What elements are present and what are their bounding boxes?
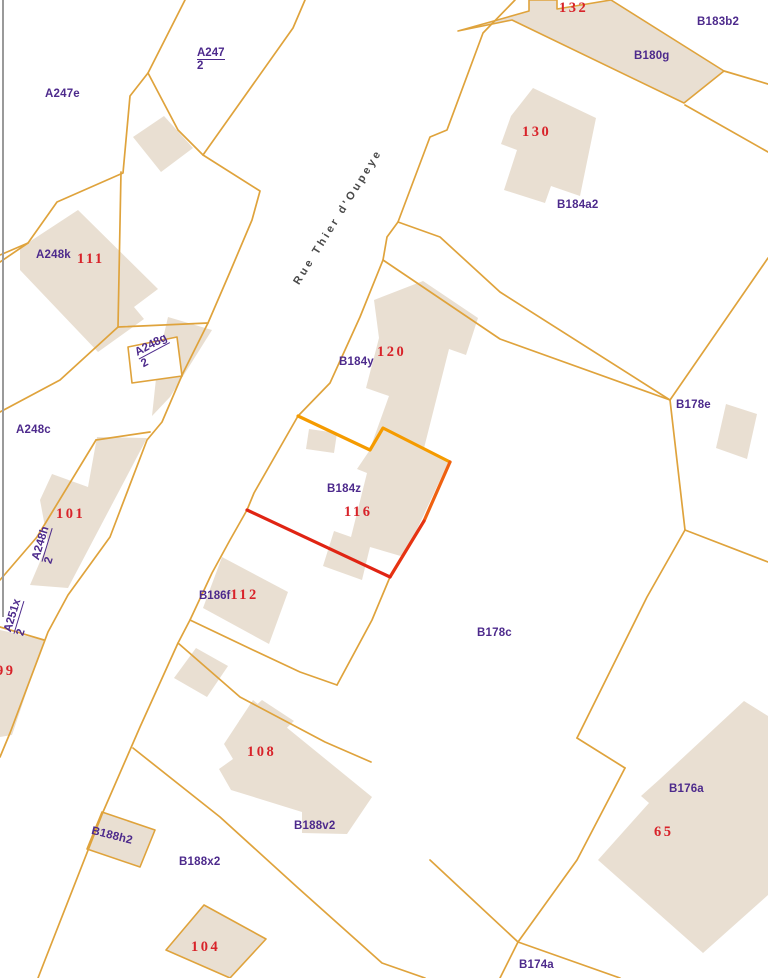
parcel-line-strip-tail-2 <box>685 105 768 152</box>
parcel-line-v1-northeast <box>670 258 768 400</box>
parcel-line-b174a-road <box>430 860 620 978</box>
building-65 <box>598 701 768 953</box>
parcel-line-strip-tail-1 <box>724 71 768 84</box>
building-a251x <box>0 630 44 737</box>
building-b188h2 <box>87 812 155 867</box>
parcel-line-v1-south <box>670 400 685 530</box>
parcel-line-b174a-west <box>500 768 625 978</box>
building-annex-1 <box>174 648 228 697</box>
building-108 <box>219 700 372 834</box>
parcel-line-b178c-south <box>577 738 625 768</box>
parcel-line-b186f-east <box>337 577 390 685</box>
building-a247e <box>133 116 193 172</box>
building-111 <box>20 210 158 352</box>
building-b178e <box>716 404 757 459</box>
parcel-line-b176a-west <box>577 530 685 738</box>
cadastral-map-viewport[interactable]: A247eA248kA248cB183b2B180gB184a2B178eB18… <box>0 0 768 978</box>
building-132-strip <box>458 0 724 103</box>
building-112 <box>203 557 288 644</box>
building-104 <box>166 905 266 978</box>
box-a248g2 <box>128 337 182 383</box>
building-130 <box>501 88 596 203</box>
parcel-map-canvas[interactable] <box>0 0 768 978</box>
parcel-line-east-branch <box>685 530 768 562</box>
